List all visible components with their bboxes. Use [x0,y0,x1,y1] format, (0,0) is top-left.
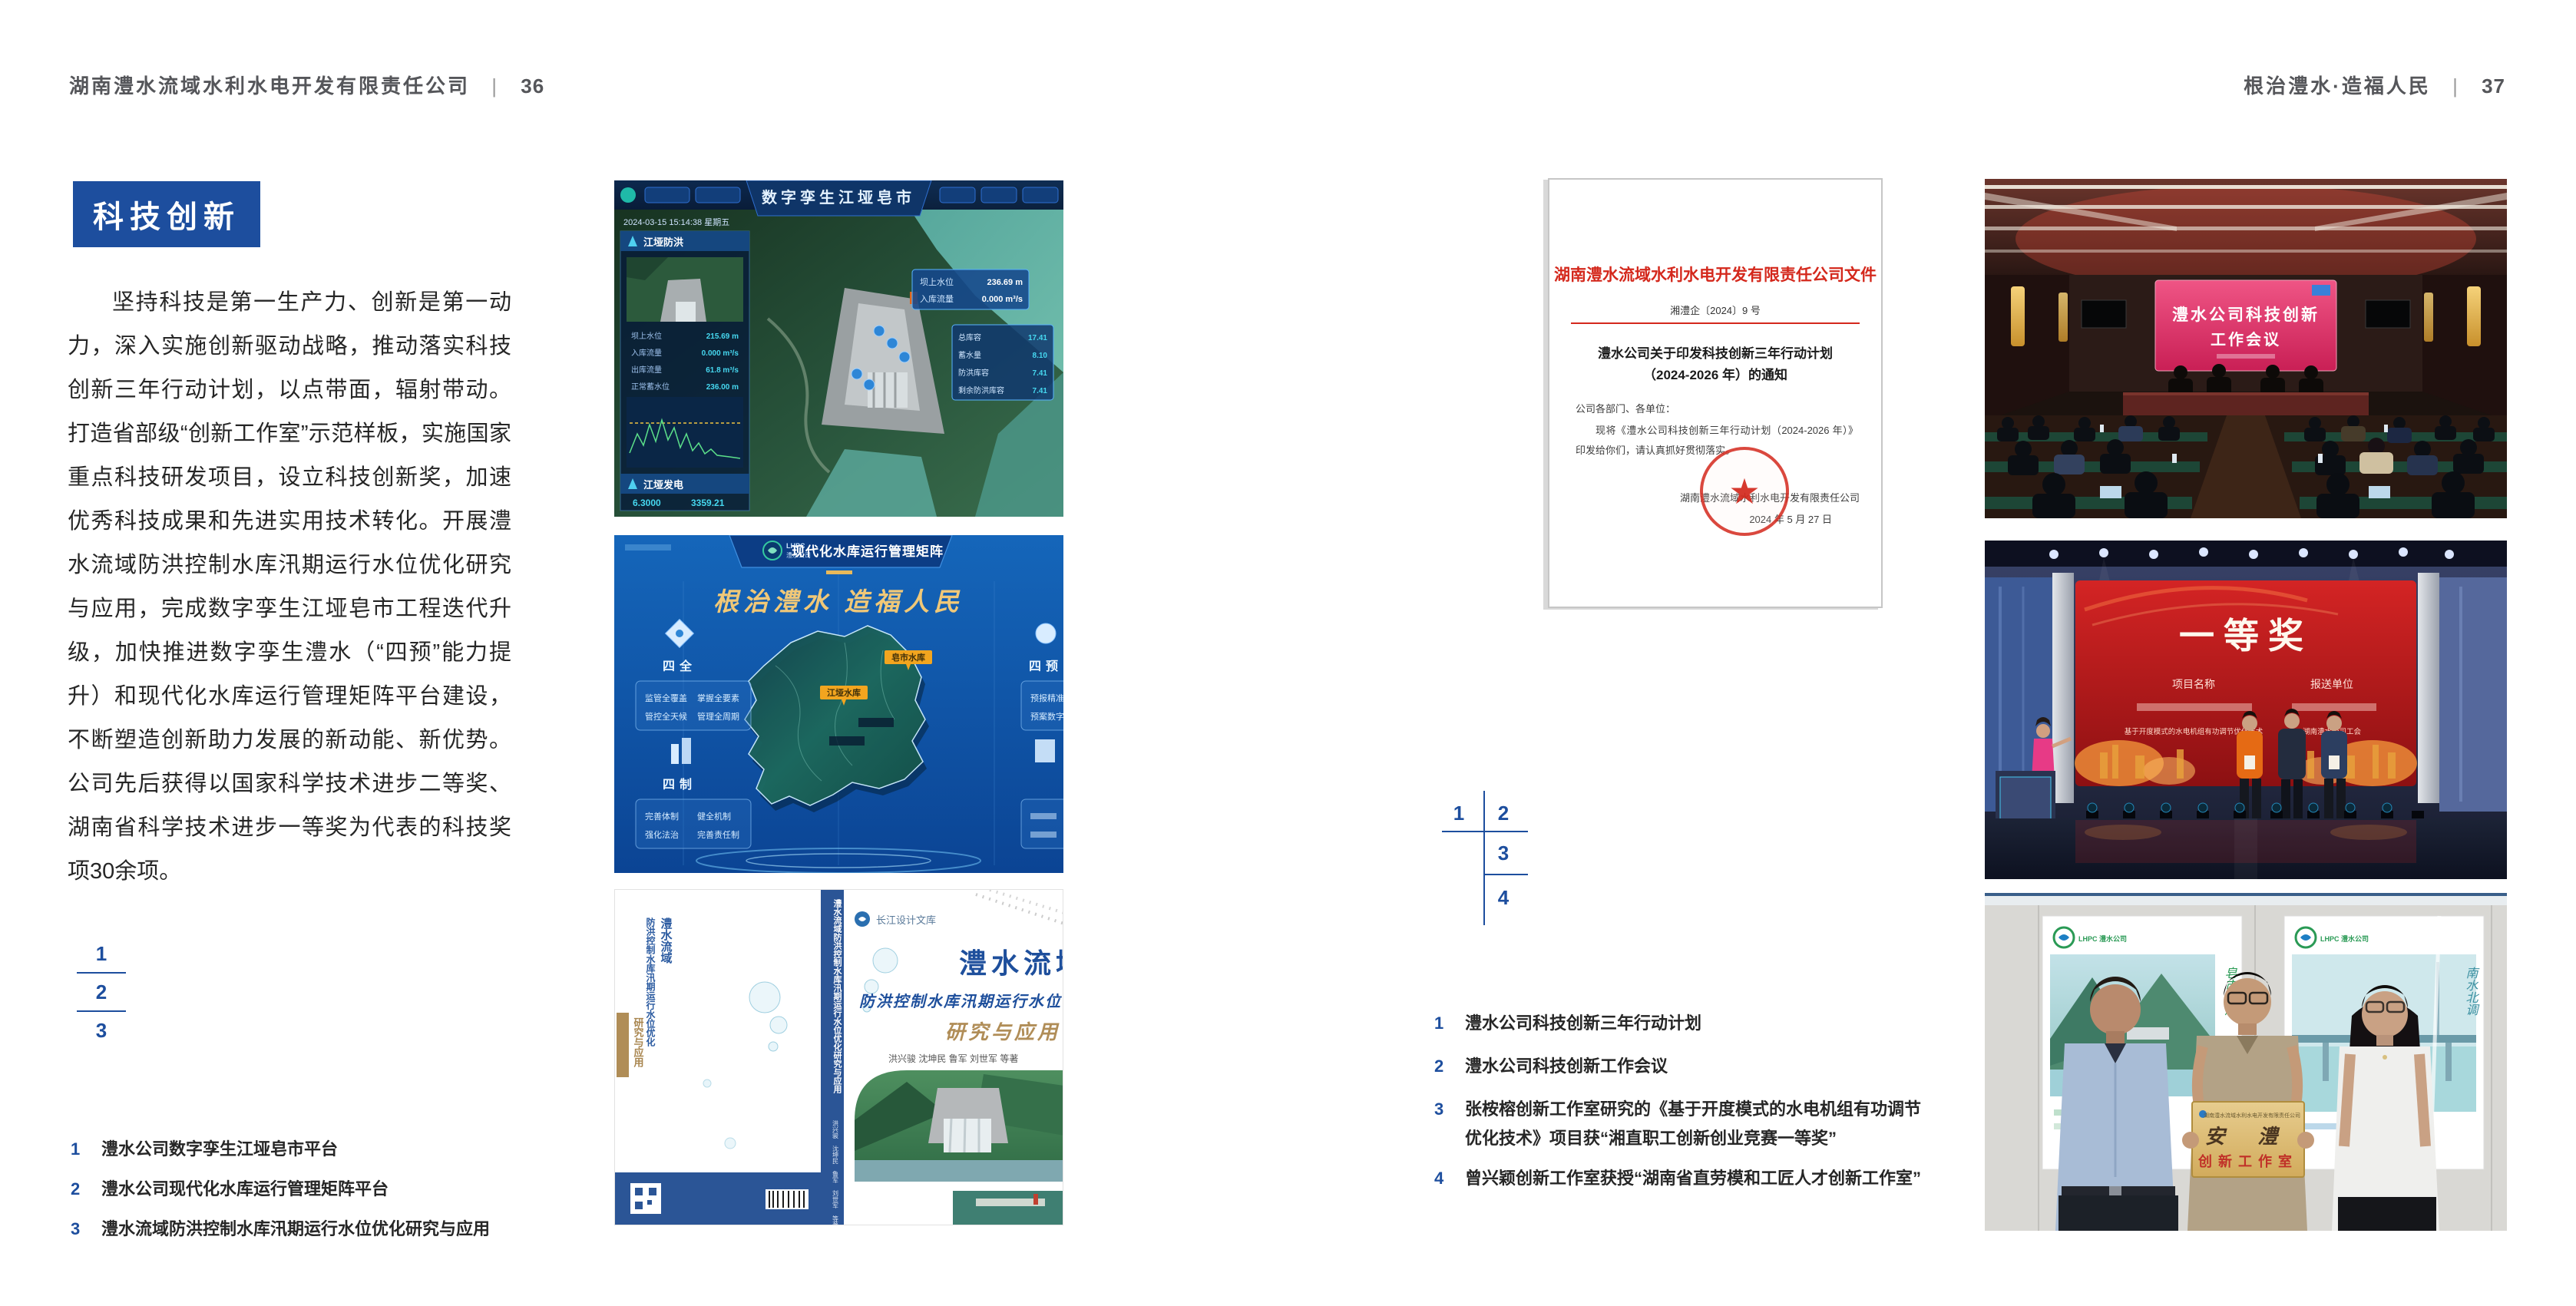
caption-number: 2 [1434,1055,1451,1078]
header-left: 湖南澧水流域水利水电开发有限责任公司 | 36 [69,71,544,99]
dashboard-datetime: 2024-03-15 15:14:38 星期五 [623,217,729,227]
dashboard-tab [696,187,740,203]
captions-right: 1 澧水公司科技创新三年行动计划 2 澧水公司科技创新工作会议 3 张桉榕创新工… [1434,1012,1921,1190]
dashboard-title: 数字孪生江垭皂市 [762,188,915,207]
svg-text:管控全天候: 管控全天候 [645,711,687,722]
meeting-screen-line1: 澧水公司科技创新 [2172,306,2320,324]
caption-text: 澧水公司科技创新三年行动计划 [1465,1012,1701,1035]
svg-text:四制: 四制 [663,778,696,792]
stat-label: 总库容 [958,332,981,342]
document-red-rule [1571,322,1860,324]
gen-value: 3359.21 [691,498,725,508]
back-subtitle: 防洪控制水库汛期运行水位优化 [645,917,656,1047]
caption-row: 1 澧水公司数字孪生江垭皂市平台 [71,1138,490,1161]
brochure-spread: 湖南澧水流域水利水电开发有限责任公司 | 36 根治澧水·造福人民 | 37 科… [0,0,2576,1306]
svg-text:完善责任制: 完善责任制 [697,829,739,840]
figure-meeting-photo: 澧水公司科技创新 工作会议 [1985,179,2507,518]
caption-text: 澧水公司数字孪生江垭皂市平台 [101,1138,338,1161]
figure-workshop-photo: LHPC 澧水公司 皂市水库 LHPC 澧水公司 [1985,893,2507,1231]
book-subtitle2: 研究与应用 [945,1020,1060,1043]
figure-document-image: 湖南澧水流域水利水电开发有限责任公司文件 湘澧企〔2024〕9 号 澧水公司关于… [1548,178,1883,608]
svg-text:四全: 四全 [663,659,696,673]
svg-text:四预: 四预 [1029,660,1063,673]
plaque-subtitle: 创新工作室 [2197,1153,2298,1169]
award-illustration: 一等奖 项目名称 报送单位 基于开度模式的水电机组有功调节优化技术 湖南澧水公司… [1985,541,2507,879]
plaque-header: 湖南澧水流域水利水电开发有限责任公司 [2204,1112,2300,1119]
stat-value: 7.41 [1033,387,1048,395]
document-body: 现将《澧水公司科技创新三年行动计划（2024-2026 年）》印发给你们，请认真… [1576,421,1858,461]
caption-text: 澧水流域防洪控制水库汛期运行水位优化研究与应用 [101,1218,490,1241]
caption-number: 1 [1434,1012,1451,1035]
book-small-photo [953,1191,1063,1225]
figure-key-rule [77,972,126,974]
figure-key-right: 1 2 3 4 [1442,791,1528,927]
figure-key-number: 4 [1488,886,1519,909]
tooltip-value: 236.69 m [987,278,1023,287]
dashboard-tab [645,187,689,203]
caption-row: 3 澧水流域防洪控制水库汛期运行水位优化研究与应用 [71,1218,490,1241]
caption-number: 4 [1434,1167,1451,1190]
stat-label: 出库流量 [631,365,662,375]
caption-text: 澧水公司科技创新工作会议 [1465,1055,1668,1078]
stat-label: 正常蓄水位 [631,382,670,392]
spine-authors: 洪兴骏 沈坤民 鲁军 刘世军 等著 [832,1119,839,1225]
dashboard-tab [940,187,975,203]
stat-label: 防洪库容 [958,368,989,378]
matrix-illustration: LHPC 澧水公司 现代化水库运行管理矩阵 根治澧水 造福人民 江垭水库 皂市水… [614,535,1063,873]
figure-key-rule [1442,831,1528,832]
book-subtitle: 防洪控制水库汛期运行水位优化 [859,993,1063,1010]
figure-key-number: 2 [1488,802,1519,825]
caption-text: 优化技术》项目获“湘直职工创新创业竞赛一等奖” [1465,1127,1837,1150]
body-paragraph: 坚持科技是第一生产力、创新是第一动力，深入实施创新驱动战略，推动落实科技创新三年… [68,281,511,894]
caption-number: 1 [71,1138,88,1161]
caption-text: 张桉榕创新工作室研究的《基于开度模式的水电机组有功调节 [1465,1098,1921,1121]
dashboard-tab [981,187,1017,203]
caption-text: 曾兴颖创新工作室获授“湖南省直劳模和工匠人才创新工作室” [1465,1167,1921,1190]
figure-key-vline [1483,791,1485,925]
stat-label: 剩余防洪库容 [958,385,1004,395]
back-subtitle2: 研究与应用 [633,1017,645,1068]
caption-number: 3 [1434,1098,1451,1121]
figure-key-number: 3 [1488,841,1519,865]
svg-text:预案数字化: 预案数字化 [1030,711,1063,722]
matrix-title: 现代化水库运行管理矩阵 [792,544,944,559]
map-tooltip: 坝上水位 236.69 m 入库流量 0.000 m³/s [912,269,1029,309]
figure-book-image: 澧水流域 防洪控制水库汛期运行水位优化 研究与应用 [614,889,1063,1225]
poster-logo-text: LHPC 澧水公司 [2078,934,2127,943]
award-title: 一等奖 [2179,616,2313,656]
captions-left: 1 澧水公司数字孪生江垭皂市平台 2 澧水公司现代化水库运行管理矩阵平台 3 澧… [71,1138,490,1241]
figure-dashboard-image: 数字孪生江垭皂市 2024-03-15 15:14:38 星期五 江垭防洪 坝上… [614,180,1063,517]
mini-chart [627,397,743,468]
stat-label: 蓄水量 [958,351,981,360]
dashboard-tab [1023,187,1058,203]
svg-text:管理全周期: 管理全周期 [697,711,739,722]
header-divider: | [2452,74,2460,98]
seal-star-icon: ★ [1728,471,1760,512]
award-col1: 项目名称 [2172,678,2215,690]
tooltip-value: 0.000 m³/s [982,295,1023,304]
document-salutation: 公司各部门、各单位： [1576,401,1675,415]
book-spine: 澧水流域防洪控制水库汛期运行水位优化研究与应用 洪兴骏 沈坤民 鲁军 刘世军 等… [821,890,844,1225]
award-col2: 报送单位 [2310,678,2353,690]
spine-title: 澧水流域防洪控制水库汛期运行水位优化研究与应用 [832,898,843,1094]
stat-label: 坝上水位 [631,331,662,341]
figure-key-number: 1 [77,941,126,966]
meeting-screen-line2: 工作会议 [2211,330,2281,349]
document-header: 湖南澧水流域水利水电开发有限责任公司文件 [1549,263,1881,286]
dashboard-illustration: 数字孪生江垭皂市 2024-03-15 15:14:38 星期五 江垭防洪 坝上… [614,180,1063,517]
document-title-line2: （2024-2026 年）的通知 [1549,364,1881,383]
stat-value: 61.8 m³/s [706,366,739,375]
workshop-illustration: LHPC 澧水公司 皂市水库 LHPC 澧水公司 [1985,893,2507,1231]
official-seal: ★ [1700,447,1789,536]
page-number-left: 36 [521,74,544,98]
gen-value: 6.3000 [633,498,661,508]
caption-number: 2 [71,1178,88,1201]
stat-value: 17.41 [1028,334,1047,342]
book-series: 长江设计文库 [876,914,936,926]
stat-value: 236.00 m [706,383,739,392]
book-title: 澧水流域 [959,947,1063,979]
meeting-illustration: 澧水公司科技创新 工作会议 [1985,179,2507,518]
caption-number-spacer [1434,1127,1451,1150]
stat-value: 7.41 [1033,369,1048,378]
figure-matrix-image: LHPC 澧水公司 现代化水库运行管理矩阵 根治澧水 造福人民 江垭水库 皂市水… [614,535,1063,873]
figure-key-number: 3 [77,1018,126,1043]
caption-row: 2 澧水公司现代化水库运行管理矩阵平台 [71,1178,490,1201]
back-title: 澧水流域 [660,917,673,964]
company-name: 湖南澧水流域水利水电开发有限责任公司 [69,74,470,98]
svg-text:监管全覆盖: 监管全覆盖 [645,693,687,703]
document-number: 湘澧企〔2024〕9 号 [1549,303,1881,317]
slogan-text: 根治澧水·造福人民 [2244,74,2431,98]
caption-text: 澧水公司现代化水库运行管理矩阵平台 [101,1178,389,1201]
book-cover-illustration: 澧水流域 防洪控制水库汛期运行水位优化 研究与应用 [615,890,1063,1225]
page-number-right: 37 [2482,74,2505,98]
figure-key-left: 1 2 3 [77,941,126,1043]
svg-text:预报精准化: 预报精准化 [1030,693,1063,703]
stat-value: 215.69 m [706,332,739,341]
svg-text:强化法治: 强化法治 [645,829,679,840]
matrix-slogan: 根治澧水 造福人民 [713,588,964,617]
figure-key-rule [77,1010,126,1012]
meeting-screen: 澧水公司科技创新 工作会议 [2155,280,2336,371]
svg-text:完善体制: 完善体制 [645,811,679,822]
caption-row: 1 澧水公司科技创新三年行动计划 [1434,1012,1921,1035]
workshop-plaque: 湖南澧水流域水利水电开发有限责任公司 安 澧 创新工作室 [2182,1102,2314,1177]
stat-label: 入库流量 [631,348,662,358]
poster-logo-text: LHPC 澧水公司 [2320,934,2369,943]
plaque-title: 安 澧 [2205,1126,2292,1148]
document-title-line1: 澧水公司关于印发科技创新三年行动计划 [1549,342,1881,362]
tooltip-label: 坝上水位 [920,276,954,287]
tooltip-label: 入库流量 [920,293,954,304]
caption-number: 3 [71,1218,88,1241]
svg-text:掌握全要素: 掌握全要素 [697,693,739,703]
poster-right-calligraphy: 南水北调 [2464,967,2478,1016]
svg-text:江垭水库: 江垭水库 [827,687,861,698]
panel-title-flood: 江垭防洪 [643,236,683,248]
svg-text:皂市水库: 皂市水库 [891,652,925,663]
figure-key-number: 1 [1443,802,1474,825]
reservoir-panel: 总库容 17.41 蓄水量 8.10 防洪库容 7.41 剩余防洪库容 7.41 [952,325,1053,400]
caption-row: 4 曾兴颖创新工作室获授“湖南省直劳模和工匠人才创新工作室” [1434,1167,1921,1190]
book-authors: 洪兴骏 沈坤民 鲁军 刘世军 等著 [888,1053,1018,1064]
caption-row: 3 张桉榕创新工作室研究的《基于开度模式的水电机组有功调节 [1434,1098,1921,1121]
section-title-badge: 科技创新 [73,181,260,247]
stat-value: 8.10 [1033,352,1048,360]
svg-text:健全机制: 健全机制 [697,811,731,822]
figure-award-photo: 一等奖 项目名称 报送单位 基于开度模式的水电机组有功调节优化技术 湖南澧水公司… [1985,541,2507,879]
book-cover-photo [855,1070,1063,1182]
caption-row-continuation: 优化技术》项目获“湘直职工创新创业竞赛一等奖” [1434,1127,1921,1150]
figure-key-rule [1483,874,1528,875]
stat-value: 0.000 m³/s [702,349,739,358]
figure-key-number: 2 [77,980,126,1004]
header-right: 根治澧水·造福人民 | 37 [2244,71,2505,99]
header-divider: | [491,74,499,98]
caption-row: 2 澧水公司科技创新工作会议 [1434,1055,1921,1078]
panel-title-power: 江垭发电 [643,479,683,491]
